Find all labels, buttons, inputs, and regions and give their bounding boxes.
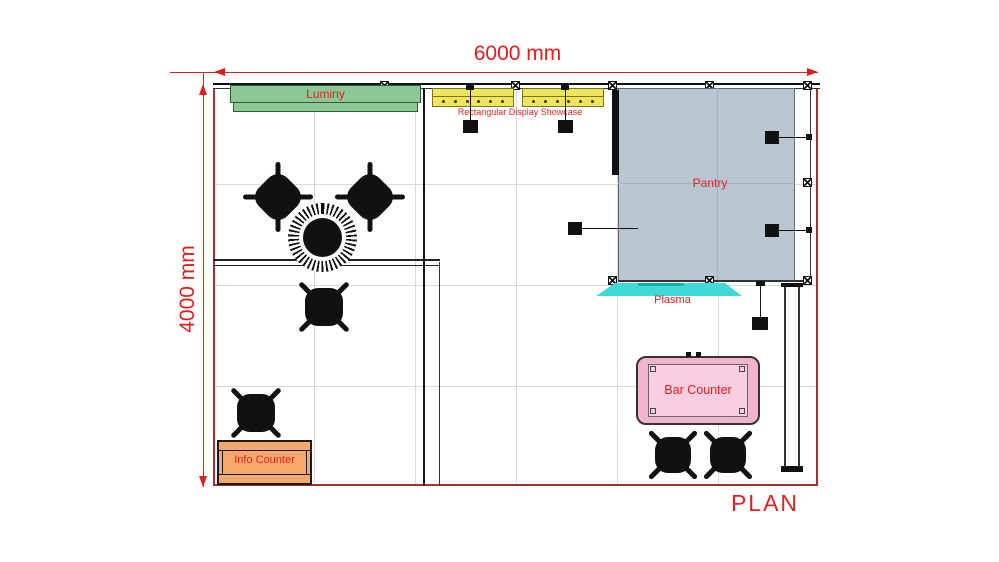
hanger-line (470, 88, 471, 121)
bar-counter-tab (696, 352, 701, 357)
bar-corner-bracket (739, 408, 745, 414)
wall-fixture (765, 131, 779, 144)
wall-post (803, 276, 812, 285)
wall-fixture (765, 224, 779, 237)
info-counter-line (219, 450, 310, 451)
wall-end-cap (781, 283, 803, 287)
partition-wall-inner-line (439, 262, 440, 486)
display-showcase-left (432, 88, 514, 107)
fixture-arm-line (582, 228, 638, 229)
info-counter-line (219, 474, 310, 475)
right-partition-wall (784, 287, 800, 469)
wall-attach-point (466, 83, 474, 90)
showcase-label: Rectangular Display Showcase (425, 107, 615, 117)
partition-wall-vertical (423, 88, 425, 486)
bar-counter-label: Bar Counter (648, 383, 748, 397)
chair-seat (710, 437, 746, 473)
bar-counter-tab (686, 352, 691, 357)
chair (230, 387, 282, 439)
showcase-shelf-band (433, 89, 513, 97)
wall-end-cap (781, 466, 803, 472)
chair (703, 430, 753, 480)
height-arrow-top-icon (199, 84, 207, 95)
bar-corner-bracket (650, 366, 656, 372)
bar-corner-bracket (650, 408, 656, 414)
wall-attach-point (561, 83, 569, 90)
plasma-screen-edge (638, 283, 684, 286)
hanging-light-fixture (558, 120, 573, 133)
chair (298, 281, 350, 333)
width-arrow-right-icon (807, 68, 818, 76)
wall-attach-point (756, 281, 765, 286)
hanging-light-fixture (463, 120, 478, 133)
showcase-spotlight-dots (433, 97, 513, 106)
floor-grid-line (415, 88, 416, 484)
showcase-spotlight-dots (523, 97, 603, 106)
floor-plan-canvas: 6000 mm 4000 mm Luminy Rectangular Displ… (0, 0, 999, 562)
bar-corner-bracket (739, 366, 745, 372)
chair (648, 430, 698, 480)
plasma-label: Plasma (630, 294, 715, 306)
luminy-counter-front-band (233, 102, 418, 112)
fixture-wall-tick (806, 134, 812, 140)
hanging-light-fixture (752, 317, 768, 330)
wall-post (803, 178, 812, 187)
fixture-wall-tick (806, 227, 812, 233)
pantry-bottom-wall (618, 280, 811, 282)
hanger-line (565, 88, 566, 121)
info-counter-label: Info Counter (217, 454, 312, 466)
luminy-label: Luminy (230, 87, 421, 101)
width-arrow-left-icon (214, 68, 225, 76)
height-arrow-bottom-icon (199, 476, 207, 487)
showcase-shelf-band (523, 89, 603, 97)
floor-grid-line (516, 88, 517, 484)
wall-fixture (568, 222, 582, 235)
chair-seat (237, 394, 275, 432)
width-dimension-label: 6000 mm (455, 42, 580, 66)
pantry-door-panel (612, 90, 619, 175)
wall-post (608, 81, 617, 90)
width-dimension-line (170, 72, 818, 73)
plan-title: PLAN (720, 490, 810, 517)
hanger-line (760, 285, 761, 318)
display-showcase-right (522, 88, 604, 107)
chair-seat (655, 437, 691, 473)
chair-seat (305, 288, 343, 326)
height-dimension-label: 4000 mm (176, 234, 200, 344)
height-dimension-line (203, 72, 204, 487)
pantry-label: Pantry (660, 176, 760, 190)
